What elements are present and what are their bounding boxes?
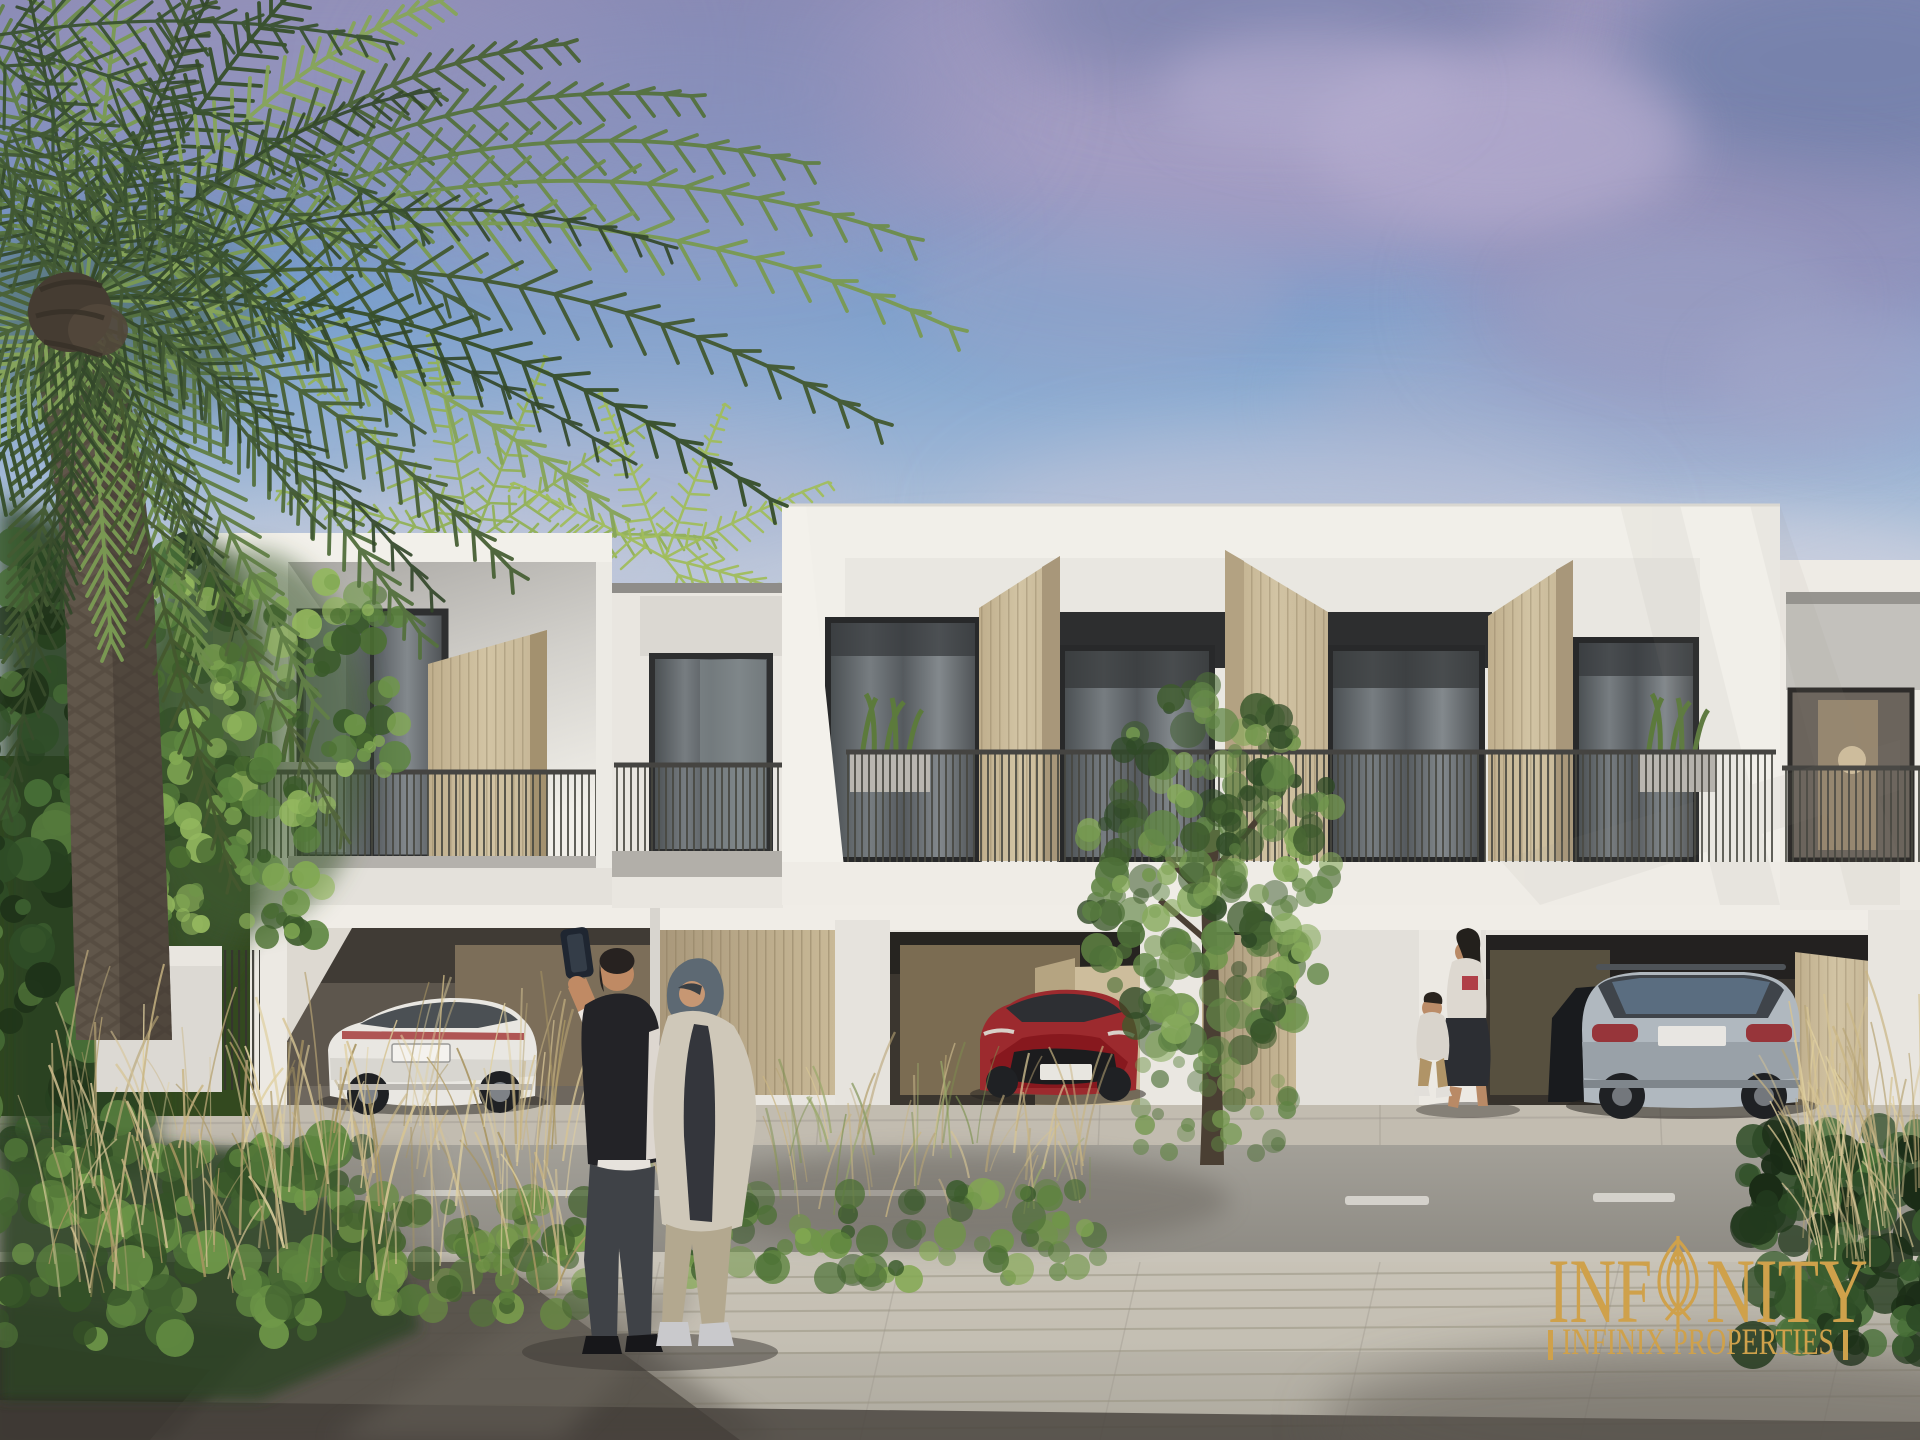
svg-text:INFINIX PROPERTIES: INFINIX PROPERTIES bbox=[1562, 1322, 1834, 1363]
